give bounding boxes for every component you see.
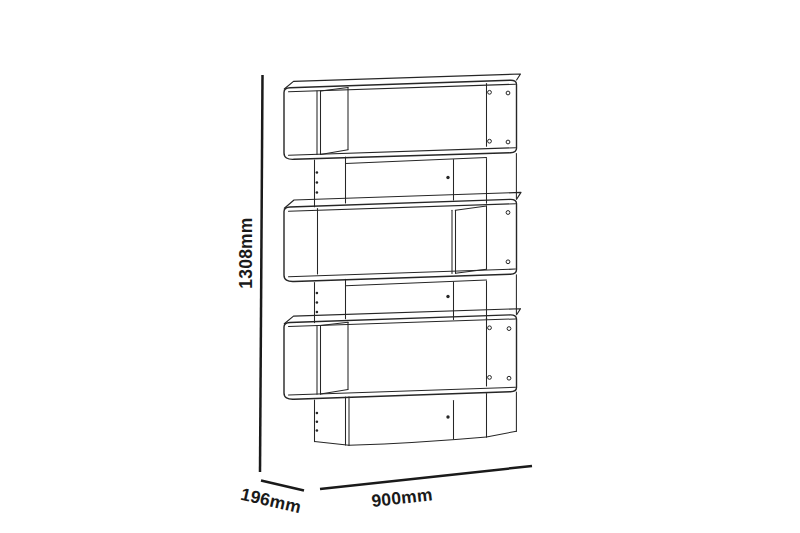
height-dimension-label: 1308mm — [236, 217, 256, 288]
height-dimension: 1308mm — [236, 75, 263, 472]
right-foot-bottom-edge — [487, 431, 517, 437]
box-outline — [284, 199, 517, 281]
dowel-mark — [316, 171, 319, 174]
screw-hole — [488, 326, 492, 330]
dowel-mark — [316, 429, 319, 432]
screw-hole — [506, 140, 510, 144]
divider-top-edge — [456, 206, 487, 210]
screw-holes — [506, 211, 510, 264]
width-dimension-label: 900mm — [370, 484, 433, 511]
dowel-mark — [316, 311, 319, 314]
product-dimension-diagram: 1308mm 196mm 900mm — [0, 0, 800, 533]
dowel-mark — [316, 181, 319, 184]
dowel-mark — [316, 421, 319, 424]
back-panel-hole — [446, 295, 449, 298]
bookcase — [284, 74, 521, 445]
height-dimension-line — [260, 75, 263, 472]
bookcase-line-drawing: 1308mm 196mm 900mm — [0, 0, 800, 533]
back-panel-hole — [446, 415, 449, 418]
dowel-mark — [316, 412, 319, 415]
bottom-shelf-box — [284, 309, 521, 400]
back-panel-top-edge — [346, 280, 487, 286]
back-panel-bottom-edge — [349, 437, 487, 445]
screw-hole — [506, 91, 510, 95]
inner-top-line — [289, 204, 516, 212]
screw-hole — [507, 376, 511, 380]
screw-hole — [506, 260, 510, 264]
middle-shelf-box — [284, 192, 521, 281]
screw-holes — [488, 90, 510, 144]
back-panel-hole — [446, 176, 449, 179]
box-outline — [284, 315, 517, 399]
dowel-mark — [316, 292, 319, 295]
top-shelf-box — [284, 74, 521, 159]
dowel-mark — [316, 191, 319, 194]
width-dimension: 900mm — [320, 466, 532, 511]
box-outline — [284, 80, 517, 159]
screw-hole — [506, 211, 510, 215]
screw-hole — [507, 327, 511, 331]
screw-hole — [488, 376, 492, 380]
screw-hole — [488, 90, 492, 94]
base-support — [315, 392, 517, 445]
left-foot-bottom-edge — [315, 442, 350, 446]
screw-hole — [488, 139, 492, 143]
back-panel-top-edge — [346, 158, 487, 164]
screw-holes — [488, 326, 511, 380]
depth-dimension: 196mm — [239, 481, 304, 518]
dowel-mark — [316, 301, 319, 304]
